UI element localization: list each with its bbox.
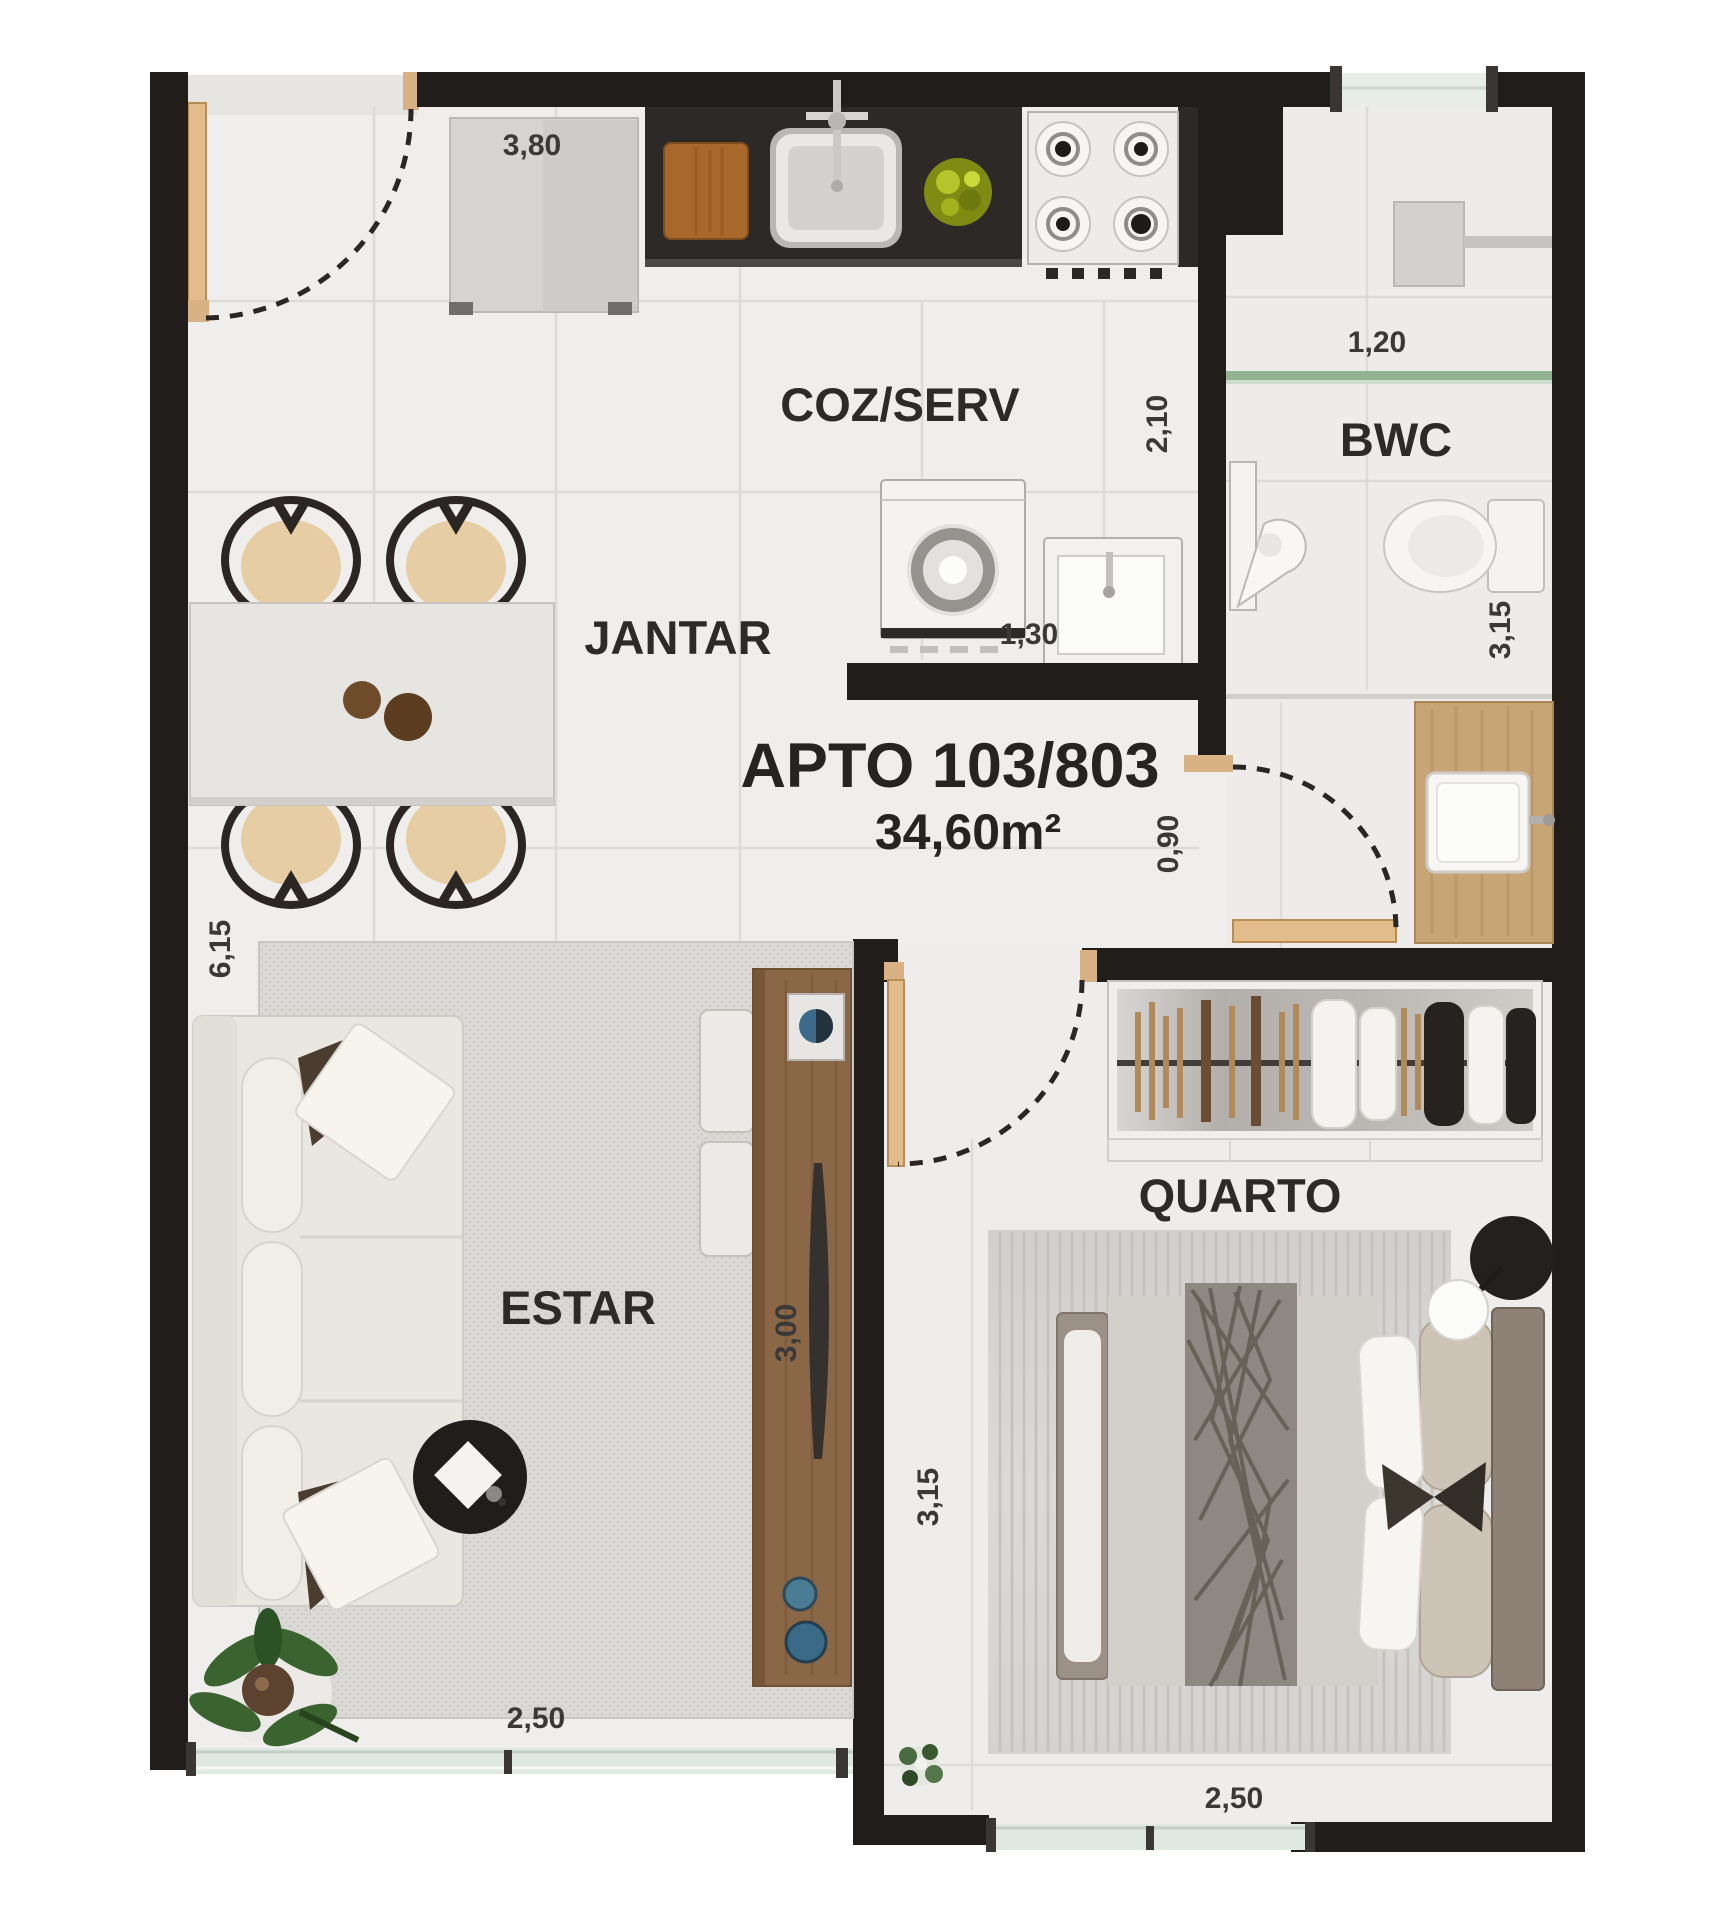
- svg-text:3,80: 3,80: [503, 129, 561, 162]
- svg-text:QUARTO: QUARTO: [1139, 1169, 1342, 1222]
- svg-text:3,15: 3,15: [912, 1468, 945, 1526]
- svg-text:BWC: BWC: [1340, 413, 1452, 466]
- svg-text:2,50: 2,50: [507, 1702, 565, 1735]
- svg-text:6,15: 6,15: [204, 920, 237, 978]
- svg-text:1,30: 1,30: [1000, 618, 1058, 651]
- svg-text:3,00: 3,00: [770, 1304, 803, 1362]
- svg-text:2,50: 2,50: [1205, 1782, 1263, 1815]
- svg-text:COZ/SERV: COZ/SERV: [780, 378, 1020, 431]
- svg-text:ESTAR: ESTAR: [500, 1281, 656, 1334]
- svg-text:APTO 103/803: APTO 103/803: [740, 731, 1159, 801]
- svg-text:34,60m²: 34,60m²: [875, 804, 1061, 860]
- svg-text:0,90: 0,90: [1152, 815, 1185, 873]
- svg-text:2,10: 2,10: [1141, 395, 1174, 453]
- svg-text:1,20: 1,20: [1348, 326, 1406, 359]
- svg-text:JANTAR: JANTAR: [584, 611, 771, 664]
- svg-text:3,15: 3,15: [1484, 601, 1517, 659]
